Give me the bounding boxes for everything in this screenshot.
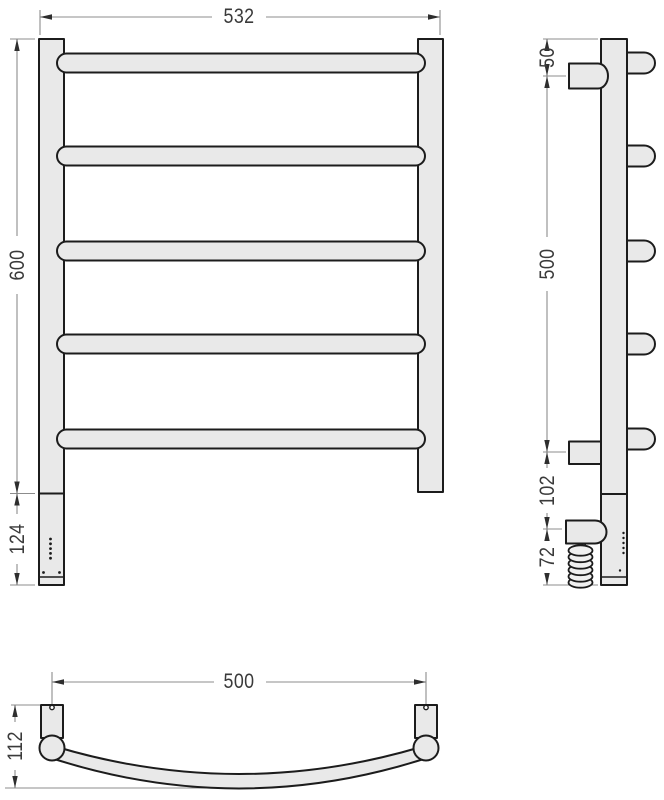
screw-hole-left: [50, 705, 54, 709]
dim-label-side-cable: 72: [536, 547, 560, 568]
dimension-top-span: 500: [52, 670, 426, 694]
dimension-side-span: 500: [536, 76, 560, 452]
power-box: [566, 521, 607, 544]
plan-post-right: [414, 736, 439, 761]
bar-end: [627, 429, 655, 450]
dim-label-front-lower: 124: [6, 523, 30, 554]
dim-label-front-height: 600: [6, 249, 30, 280]
towel-bars: [57, 54, 425, 449]
screw-hole-right: [424, 705, 428, 709]
dimension-top-depth: 112: [4, 705, 28, 788]
towel-bar: [57, 242, 425, 261]
wall-bracket-top: [569, 64, 608, 89]
dim-label-front-width: 532: [223, 5, 254, 29]
dim-label-side-lower: 102: [536, 475, 560, 506]
coiled-cable: [569, 545, 593, 587]
towel-bar: [57, 54, 425, 73]
dimension-front-width: 532: [40, 5, 440, 35]
dim-label-side-top: 50: [536, 47, 560, 68]
wall-bracket-bottom: [569, 442, 601, 465]
dimension-front-lower: 124: [6, 494, 35, 586]
plan-post-left: [40, 736, 65, 761]
towel-bar: [57, 430, 425, 449]
right-post: [418, 39, 443, 492]
towel-bar: [57, 335, 425, 354]
dimension-side-lower: 102: [536, 452, 560, 529]
dim-label-top-depth: 112: [4, 731, 28, 761]
side-post: [601, 39, 627, 585]
curved-bar: [45, 747, 433, 789]
bar-end: [627, 241, 655, 262]
bar-end: [627, 334, 655, 355]
side-view: 50 500 102 72: [536, 39, 655, 588]
towel-rail-drawing: 532 600 124: [0, 0, 664, 800]
dimension-front-height: 600: [6, 39, 35, 494]
bar-ends: [627, 53, 655, 450]
top-view: 500 112: [4, 670, 439, 789]
front-view: 532 600 124: [6, 5, 443, 585]
towel-bar: [57, 147, 425, 166]
dimension-side-cable: 72: [536, 529, 560, 585]
left-post: [39, 39, 64, 585]
dim-label-top-span: 500: [223, 670, 254, 694]
technical-drawing: 532 600 124: [0, 0, 664, 800]
dim-label-side-span: 500: [536, 248, 560, 279]
bar-end: [627, 146, 655, 167]
bar-end: [627, 53, 655, 74]
dimension-side-top: 50: [536, 39, 560, 76]
